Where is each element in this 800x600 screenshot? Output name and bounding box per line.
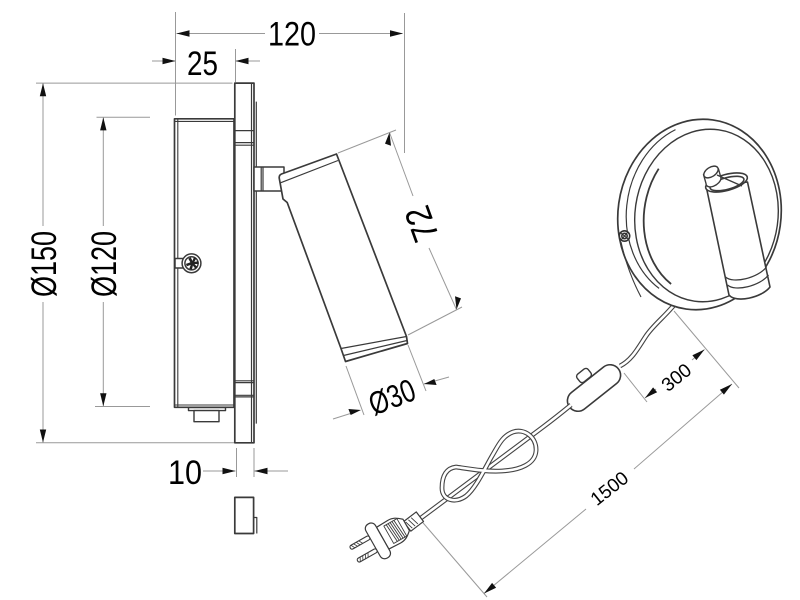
svg-text:Ø120: Ø120: [85, 231, 124, 297]
svg-text:10: 10: [168, 454, 202, 492]
svg-text:120: 120: [268, 16, 316, 54]
svg-text:25: 25: [187, 45, 218, 83]
svg-text:Ø150: Ø150: [25, 231, 64, 297]
